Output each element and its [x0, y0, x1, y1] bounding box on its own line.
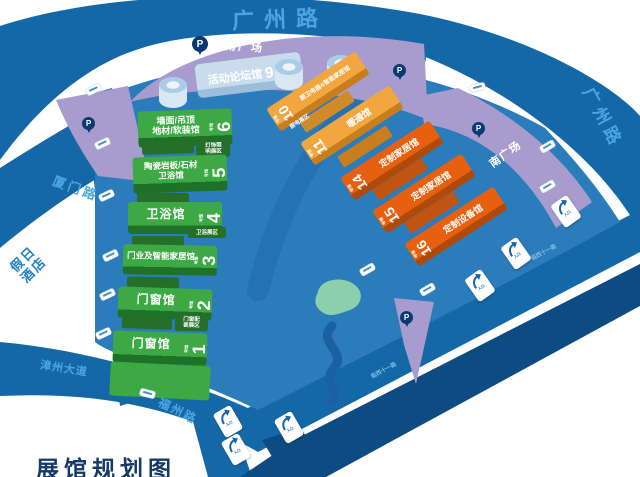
hall-9-name: 活动论坛馆	[207, 65, 264, 88]
hall-5-suffix: 号馆	[206, 169, 209, 177]
parking-icon-south-wedge: P	[400, 311, 413, 324]
parking-icon-north: P	[393, 64, 406, 77]
parking-letter: P	[404, 313, 409, 322]
hall-4-number: 4	[205, 213, 223, 223]
hall-3-suffix: 号馆	[196, 256, 199, 264]
parking-letter: P	[397, 66, 402, 75]
entrance-label: 入口	[226, 421, 234, 427]
zone-window-accessories: 门窗配套展区	[175, 314, 208, 332]
hall-2-suffix: 号馆	[191, 300, 194, 308]
hall-5: 陶瓷岩板/石材卫浴馆 号馆5	[132, 154, 227, 193]
hall-5-number: 5	[210, 167, 228, 178]
hall-5-name-line2: 卫浴馆	[158, 171, 184, 181]
hall-6-name-line2: 地材/软装馆	[152, 124, 200, 136]
hall-3-name-line1: 门业及智能家居馆	[127, 251, 195, 262]
parking-letter: P	[476, 124, 481, 133]
hall-connector	[122, 317, 172, 330]
zone-bathroom: 卫浴展区	[188, 227, 226, 238]
hall-3: 门业及智能家居馆 号馆3	[123, 244, 218, 276]
expo-planning-map: 广州路 广州路 厦门路 漳州大道 福州路 临西十一路 临西十一路 P 东南广场 …	[0, 0, 640, 477]
hall-4-suffix: 号馆	[201, 214, 203, 222]
zone-bathroom-label: 卫浴展区	[196, 230, 218, 236]
hall-1-number: 1	[190, 344, 208, 355]
parking-letter: P	[197, 39, 204, 50]
parking-icon-south-plaza: P	[472, 122, 485, 135]
parking-icon-west: P	[82, 117, 95, 130]
hall-6-suffix: 号馆	[211, 123, 214, 131]
hall-2-name-line1: 门窗馆	[136, 293, 175, 308]
zone-window-acc-line2: 套展区	[183, 322, 200, 328]
hall-1-suffix: 号馆	[186, 345, 189, 353]
hall-3-number: 3	[200, 256, 218, 266]
map-background	[0, 0, 640, 477]
map-title: 展馆规划图	[36, 450, 176, 477]
hall-apron	[109, 361, 211, 400]
hall-1: 门窗馆 号馆1	[112, 330, 207, 365]
entrance-label: 入口	[287, 427, 295, 433]
hall-connector	[142, 141, 194, 155]
entrance-label: 入口	[564, 210, 572, 216]
hall-2-number: 2	[195, 300, 213, 311]
hall-1-name-line1: 门窗馆	[131, 337, 170, 352]
parking-letter: P	[86, 119, 91, 128]
hall-6-number: 6	[215, 121, 233, 132]
parking-icon-southeast: P	[192, 36, 208, 52]
entrance-label: 入口	[514, 252, 522, 258]
road-label-guangzhou-top: 广州路	[231, 0, 328, 35]
hall-4-name-line1: 卫浴馆	[146, 208, 185, 221]
zone-lighting-line2: 明展区	[205, 148, 222, 154]
entrance-label: 入口	[234, 449, 242, 455]
entrance-label: 入口	[478, 284, 486, 290]
